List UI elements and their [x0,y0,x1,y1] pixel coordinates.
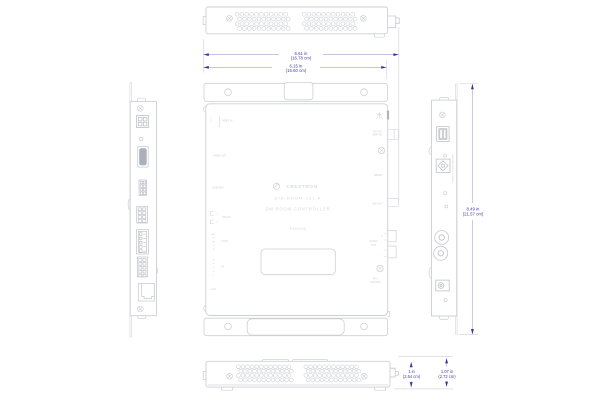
svg-text:NET: NET [211,234,216,236]
svg-text:COM: COM [221,239,227,243]
svg-text:CRESTRON: CRESTRON [286,184,317,189]
svg-text:(21.57 cm): (21.57 cm) [463,212,484,217]
svg-text:RELAY: RELAY [223,215,232,219]
svg-text:MMP NO: MMP NO [373,134,383,137]
svg-text:0.5A MAX: 0.5A MAX [370,281,381,284]
svg-text:(2.54 cm): (2.54 cm) [403,374,421,379]
svg-text:24 V: 24 V [373,278,378,281]
svg-text:OUT: OUT [371,243,377,247]
svg-text:USB DEV: USB DEV [212,186,224,190]
svg-text:CONNECT TO DIN 2ER8 ONLY: CONNECT TO DIN 2ER8 ONLY [452,153,454,183]
svg-text:(2.72 cm): (2.72 cm) [438,374,456,379]
svg-text:DIN-ROOM-101-A: DIN-ROOM-101-A [275,195,322,200]
svg-text:DM ROOM CONTROLLER: DM ROOM CONTROLLER [266,206,331,211]
svg-text:HDBT IN: HDBT IN [222,119,232,123]
svg-text:(16.78 cm): (16.78 cm) [291,56,312,61]
svg-text:IR: IR [221,265,224,269]
svg-text:LAN: LAN [211,287,216,291]
svg-text:(15.60 cm): (15.60 cm) [286,68,307,73]
svg-text:HDMI OUT: HDMI OUT [213,153,226,157]
svg-text:RESET: RESET [374,173,383,177]
svg-text:E302588: E302588 [290,227,306,231]
svg-text:SW OUT: SW OUT [372,202,383,206]
svg-text:AUDIO: AUDIO [369,239,377,243]
